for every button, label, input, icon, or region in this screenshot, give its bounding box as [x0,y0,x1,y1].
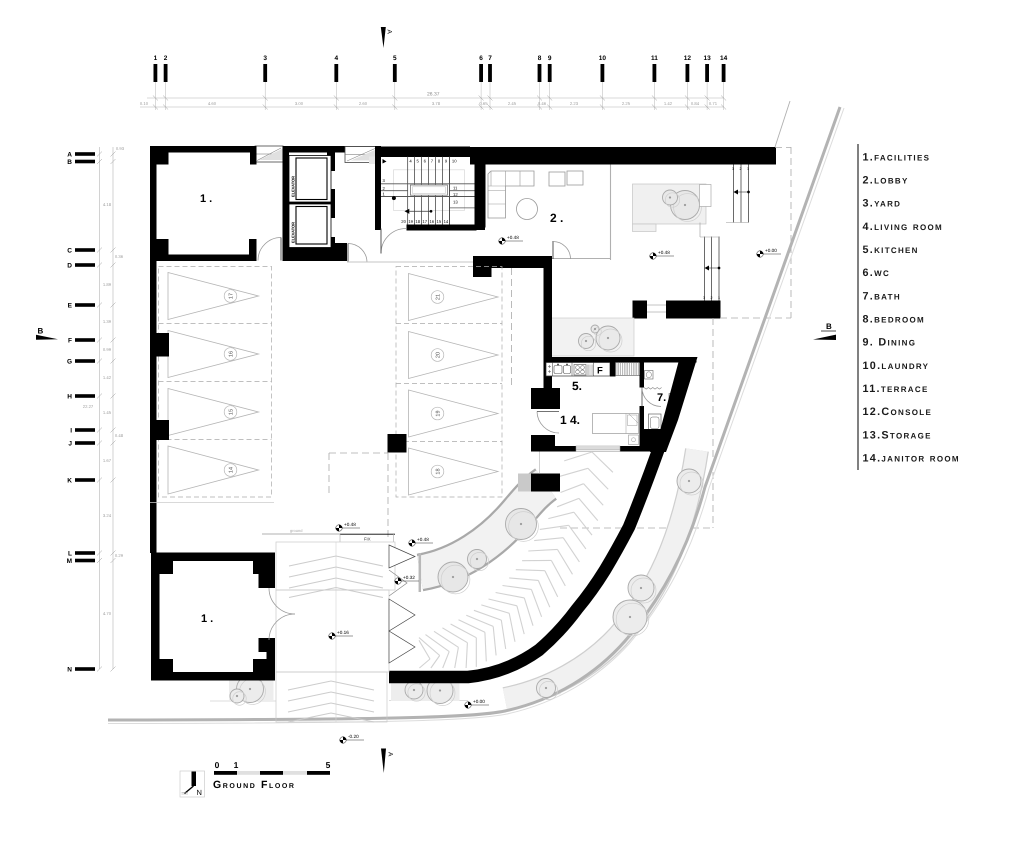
svg-text:A: A [386,30,393,35]
svg-text:1.42: 1.42 [664,101,673,106]
svg-text:+0.48: +0.48 [344,522,356,527]
svg-text:17: 17 [229,293,235,299]
svg-text:3: 3 [703,296,705,300]
svg-text:0.48: 0.48 [115,433,124,438]
svg-text:14: 14 [229,467,235,473]
svg-text:L: L [68,551,72,558]
svg-text:9. Dining: 9. Dining [863,337,917,349]
svg-text:H: H [67,394,72,401]
svg-text:19: 19 [408,219,413,224]
svg-text:4: 4 [334,55,338,62]
svg-text:F: F [68,338,72,345]
svg-text:D: D [67,263,72,270]
svg-text:8.bedroom: 8.bedroom [863,313,925,325]
svg-text:1.39: 1.39 [103,319,112,324]
svg-text:+0.00: +0.00 [473,699,485,704]
svg-text:2 .: 2 . [550,211,563,225]
svg-text:9: 9 [548,55,552,62]
svg-text:18: 18 [415,219,420,224]
svg-text:22.27: 22.27 [83,404,94,409]
svg-text:1.67: 1.67 [103,458,112,463]
svg-text:17: 17 [422,219,427,224]
svg-text:ELEVATOR: ELEVATOR [291,176,296,197]
svg-text:1: 1 [718,296,720,300]
svg-text:20: 20 [401,219,406,224]
svg-text:+0.48: +0.48 [417,537,429,542]
svg-text:10: 10 [599,55,607,62]
svg-text:2: 2 [711,296,713,300]
svg-text:N: N [67,667,72,674]
svg-text:+0.48: +0.48 [507,235,519,240]
svg-text:14: 14 [720,55,728,62]
svg-text:1: 1 [234,760,239,770]
svg-text:21: 21 [436,294,442,300]
svg-text:2.45: 2.45 [508,101,517,106]
svg-text:2.23: 2.23 [570,101,579,106]
svg-text:0.65: 0.65 [479,101,488,106]
svg-text:12: 12 [684,55,692,62]
svg-text:0.10: 0.10 [140,101,149,106]
svg-text:4.70: 4.70 [103,611,112,616]
svg-text:13: 13 [453,200,458,205]
svg-text:Ground Floor: Ground Floor [213,779,296,791]
svg-text:3: 3 [732,167,734,171]
svg-text:N: N [197,788,202,797]
svg-text:5.: 5. [572,379,582,393]
svg-text:B: B [67,159,72,166]
svg-text:14.janitor room: 14.janitor room [863,453,960,465]
svg-text:0: 0 [215,760,220,770]
svg-text:5: 5 [326,760,331,770]
svg-text:4.18: 4.18 [103,202,112,207]
svg-text:B: B [826,322,832,331]
svg-text:20: 20 [436,352,442,358]
svg-text:1: 1 [154,55,158,62]
svg-text:13: 13 [703,55,711,62]
svg-text:18: 18 [436,468,442,474]
svg-text:+0.16: +0.16 [337,630,349,635]
svg-text:12.Console: 12.Console [863,406,933,418]
svg-text:5: 5 [393,55,397,62]
svg-text:1.89: 1.89 [103,282,112,287]
svg-text:2.25: 2.25 [622,101,631,106]
svg-text:7: 7 [488,55,492,62]
svg-text:3.00: 3.00 [295,101,304,106]
svg-text:11: 11 [453,185,458,190]
svg-text:J: J [68,441,72,448]
svg-text:12: 12 [453,192,458,197]
svg-text:B: B [38,327,44,336]
svg-text:16: 16 [429,219,434,224]
svg-text:+0.32: +0.32 [403,575,415,580]
svg-text:FIX: FIX [364,537,371,542]
svg-text:11: 11 [651,55,658,62]
svg-text:0.71: 0.71 [709,101,718,106]
svg-text:A: A [67,152,72,159]
svg-text:19: 19 [436,410,442,416]
svg-text:10.laundry: 10.laundry [863,360,930,372]
svg-text:7.bath: 7.bath [863,290,901,302]
svg-text:6.wc: 6.wc [863,267,891,279]
svg-text:3.78: 3.78 [432,101,441,106]
svg-text:1.42: 1.42 [103,375,112,380]
svg-text:K: K [67,478,72,485]
svg-text:0.36: 0.36 [115,254,124,259]
svg-text:2: 2 [740,167,742,171]
svg-text:7.: 7. [657,392,666,404]
svg-text:1.45: 1.45 [103,410,112,415]
svg-text:0.93: 0.93 [116,146,125,151]
svg-text:16: 16 [229,351,235,357]
svg-text:G: G [67,359,72,366]
svg-text:0.46: 0.46 [538,101,547,106]
svg-text:1: 1 [747,167,749,171]
svg-text:M: M [67,558,72,565]
svg-text:2.60: 2.60 [359,101,368,106]
svg-text:6: 6 [479,55,483,62]
svg-text:11.terrace: 11.terrace [863,383,929,395]
svg-text:13.Storage: 13.Storage [863,429,932,441]
svg-text:C: C [67,248,72,255]
svg-text:1 4.: 1 4. [560,413,580,427]
svg-text:15: 15 [437,219,442,224]
svg-text:3: 3 [263,55,267,62]
svg-text:10: 10 [452,159,457,164]
svg-text:-0.20: -0.20 [348,734,359,739]
svg-text:+0.00: +0.00 [765,248,777,253]
svg-text:1 .: 1 . [200,193,212,205]
svg-text:I: I [70,428,72,435]
svg-text:0.99: 0.99 [103,347,112,352]
svg-text:15: 15 [229,409,235,415]
svg-text:3.24: 3.24 [103,513,112,518]
svg-text:2.lobby: 2.lobby [863,174,909,186]
svg-text:ELEVATOR: ELEVATOR [291,222,296,243]
svg-text:26.37: 26.37 [427,92,440,98]
svg-text:A: A [387,752,394,757]
svg-text:0.29: 0.29 [115,553,124,558]
svg-text:8: 8 [538,55,542,62]
svg-text:0.84: 0.84 [691,101,700,106]
svg-text:+0.48: +0.48 [658,250,670,255]
svg-text:5.kitchen: 5.kitchen [863,244,919,256]
svg-text:ground: ground [290,528,302,533]
svg-text:2: 2 [164,55,168,62]
svg-text:1 .: 1 . [201,613,213,625]
svg-text:E: E [68,303,73,310]
svg-text:4.living room: 4.living room [863,221,943,233]
svg-text:3.yard: 3.yard [863,198,902,210]
svg-text:4.60: 4.60 [208,101,217,106]
svg-text:1.facilities: 1.facilities [863,151,931,163]
svg-text:F: F [597,366,603,377]
svg-text:14: 14 [444,219,449,224]
